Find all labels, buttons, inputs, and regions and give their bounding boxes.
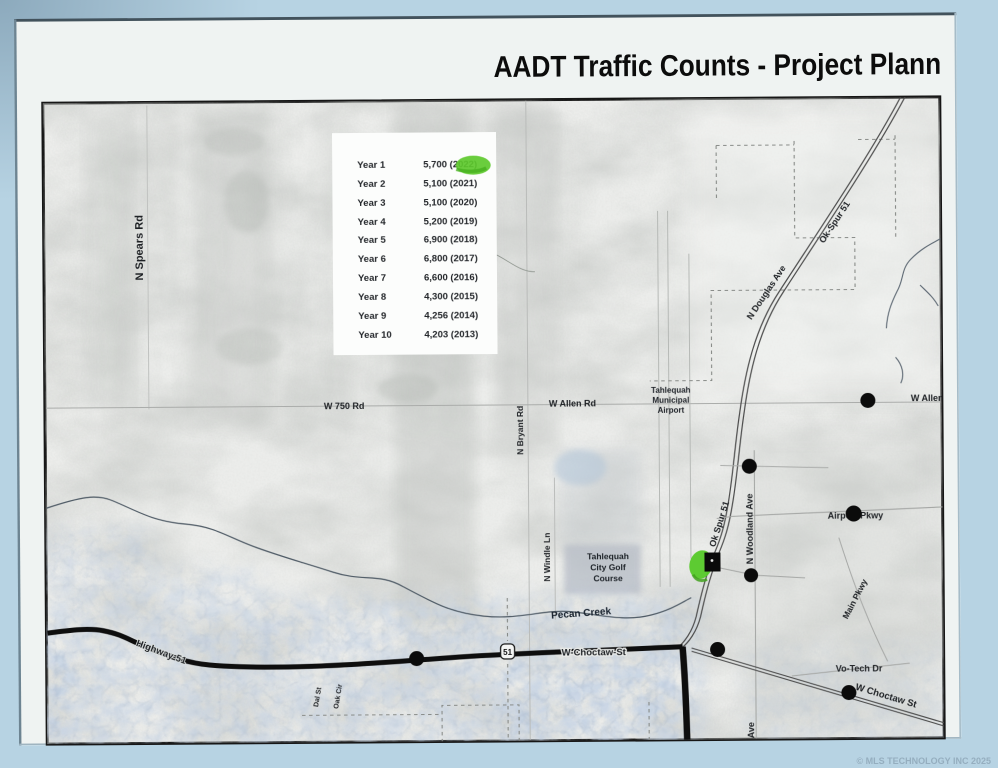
svg-text:Year 1: Year 1	[357, 160, 386, 171]
svg-text:N Spears Rd: N Spears Rd	[134, 215, 146, 281]
svg-text:N Woodland Ave: N Woodland Ave	[745, 494, 755, 565]
svg-text:Year 7: Year 7	[358, 273, 386, 284]
svg-text:N Bryant Rd: N Bryant Rd	[515, 406, 525, 455]
svg-text:Year 3: Year 3	[357, 198, 385, 209]
svg-text:4,203 (2013): 4,203 (2013)	[424, 329, 478, 340]
svg-text:6,600 (2016): 6,600 (2016)	[424, 272, 478, 283]
svg-text:4,256 (2014): 4,256 (2014)	[424, 310, 478, 321]
svg-text:Tahlequah: Tahlequah	[587, 551, 629, 561]
svg-text:AADT Traffic Counts - Project: AADT Traffic Counts - Project Planning	[493, 48, 980, 84]
svg-text:Airport: Airport	[658, 406, 685, 415]
svg-text:6,900 (2018): 6,900 (2018)	[424, 234, 478, 245]
svg-text:5,100 (2020): 5,100 (2020)	[423, 197, 477, 208]
svg-text:Tahlequah: Tahlequah	[651, 386, 691, 395]
svg-text:51: 51	[503, 648, 513, 657]
svg-text:Course: Course	[593, 573, 623, 583]
svg-text:© MLS TECHNOLOGY INC 2025: © MLS TECHNOLOGY INC 2025	[857, 756, 992, 766]
svg-text:Year 9: Year 9	[358, 311, 386, 322]
svg-text:W-Choctaw-St: W-Choctaw-St	[562, 647, 627, 658]
svg-text:5,200 (2019): 5,200 (2019)	[424, 216, 478, 227]
svg-text:Municipal: Municipal	[652, 396, 689, 405]
svg-text:Vo-Tech Dr: Vo-Tech Dr	[836, 663, 883, 673]
svg-text:4,300 (2015): 4,300 (2015)	[424, 291, 478, 302]
svg-text:Year 10: Year 10	[358, 330, 391, 341]
svg-text:N Windle Ln: N Windle Ln	[542, 533, 552, 582]
svg-text:Year 5: Year 5	[358, 235, 387, 246]
svg-text:Ave: Ave	[746, 722, 756, 738]
svg-text:Year 8: Year 8	[358, 292, 386, 303]
svg-text:5,100 (2021): 5,100 (2021)	[423, 178, 477, 189]
svg-text:6,800 (2017): 6,800 (2017)	[424, 253, 478, 264]
svg-text:Year 2: Year 2	[357, 179, 385, 190]
svg-text:W Allen Rd: W Allen Rd	[549, 398, 596, 408]
svg-text:Year 4: Year 4	[358, 217, 387, 228]
svg-text:W 750 Rd: W 750 Rd	[324, 401, 365, 411]
svg-text:Year 6: Year 6	[358, 254, 386, 265]
svg-text:City Golf: City Golf	[590, 562, 626, 572]
